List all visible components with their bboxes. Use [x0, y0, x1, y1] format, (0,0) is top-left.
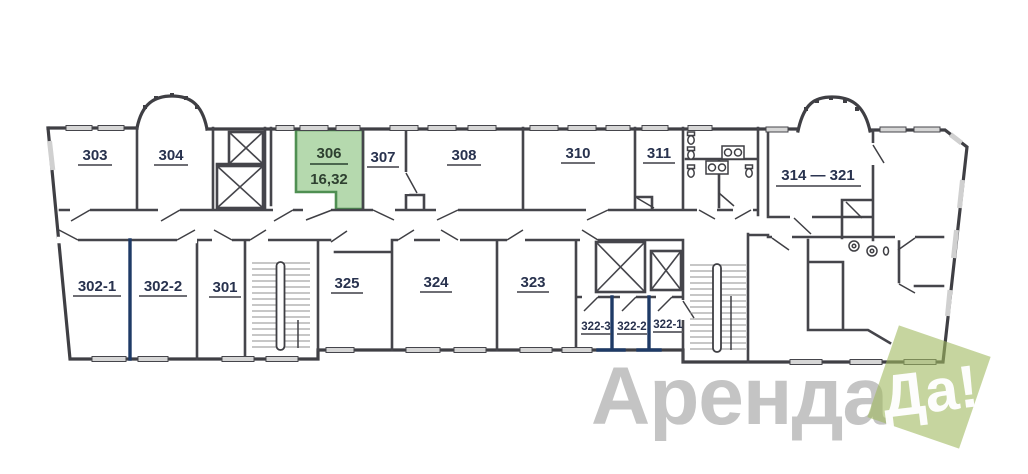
- room-label-310: 310: [565, 145, 590, 162]
- stair-handrail: [713, 264, 721, 352]
- floorplan-page: 303 304 306 16,32 307 308 310 311 314 — …: [0, 0, 1028, 474]
- room-label-314-321: 314 — 321: [781, 167, 854, 184]
- room-label-301: 301: [212, 279, 237, 296]
- room-label-307: 307: [370, 149, 395, 166]
- room-label-322-1: 322-1: [653, 319, 683, 331]
- room-label-304: 304: [158, 147, 184, 164]
- room-area-306: 16,32: [310, 171, 348, 188]
- watermark-text-arenda: Аренда: [591, 351, 889, 442]
- watermark-text-da: Да!: [878, 352, 982, 430]
- room-label-322-3: 322-3: [581, 321, 610, 333]
- room-label-325: 325: [334, 275, 359, 292]
- stair-handrail: [277, 262, 285, 350]
- room-label-311: 311: [647, 145, 671, 162]
- room-label-306[interactable]: 306: [316, 145, 341, 162]
- room-label-324: 324: [423, 274, 449, 291]
- room-label-303: 303: [82, 147, 107, 164]
- room-label-323: 323: [520, 274, 545, 291]
- room-label-322-2: 322-2: [617, 321, 646, 333]
- floor-plan-image[interactable]: 303 304 306 16,32 307 308 310 311 314 — …: [0, 0, 1028, 474]
- room-label-308: 308: [451, 147, 476, 164]
- room-label-302-1: 302-1: [78, 278, 116, 295]
- room-label-302-2: 302-2: [144, 278, 182, 295]
